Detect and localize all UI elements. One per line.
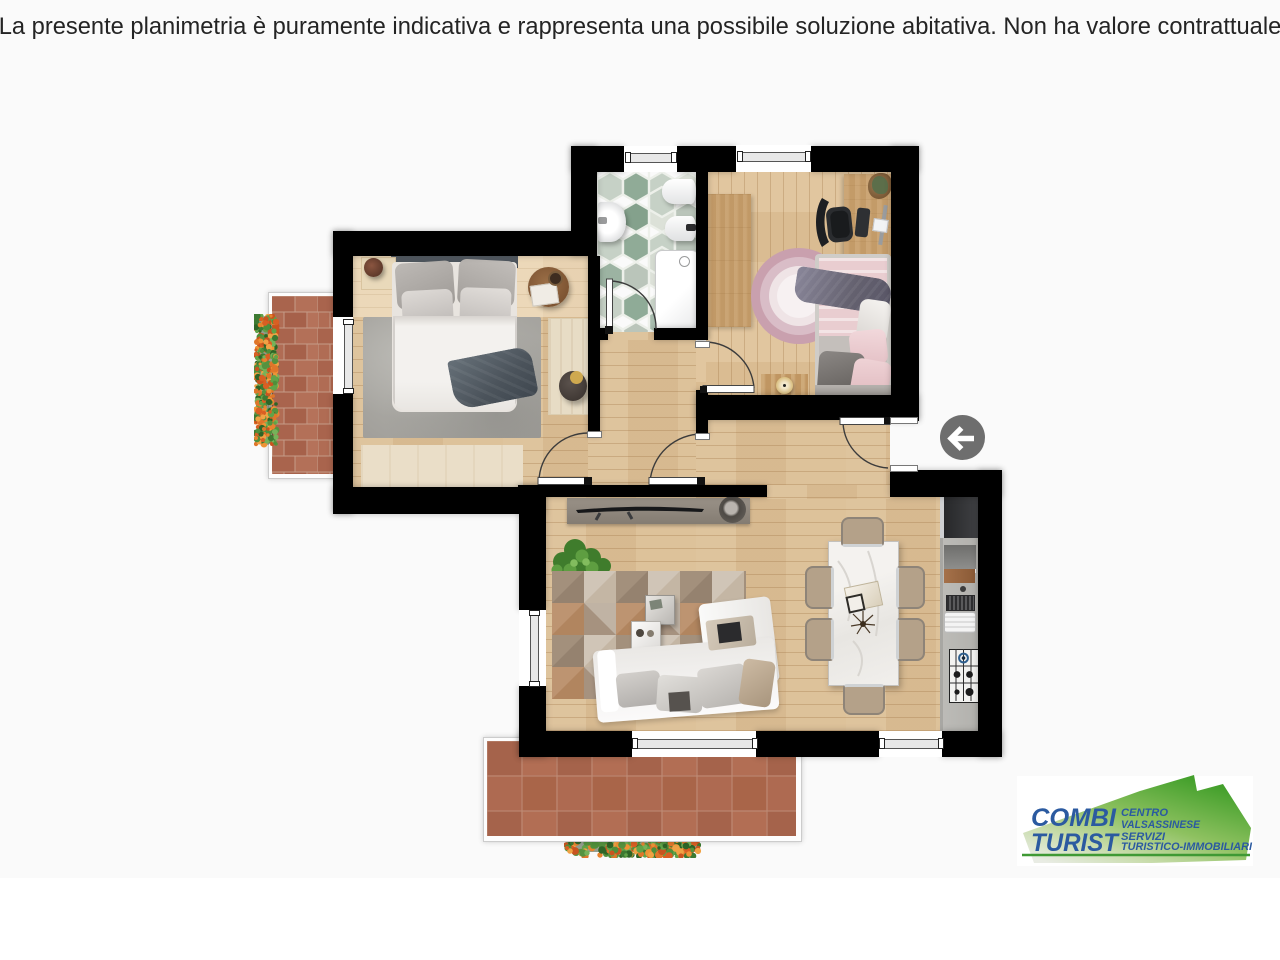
- svg-text:CENTRO: CENTRO: [1121, 807, 1168, 819]
- svg-text:TURIST: TURIST: [1031, 829, 1121, 857]
- svg-text:COMBI: COMBI: [1031, 804, 1117, 832]
- svg-text:VALSASSINESE: VALSASSINESE: [1121, 819, 1201, 831]
- svg-text:TURISTICO-IMMOBILIARI: TURISTICO-IMMOBILIARI: [1121, 841, 1253, 853]
